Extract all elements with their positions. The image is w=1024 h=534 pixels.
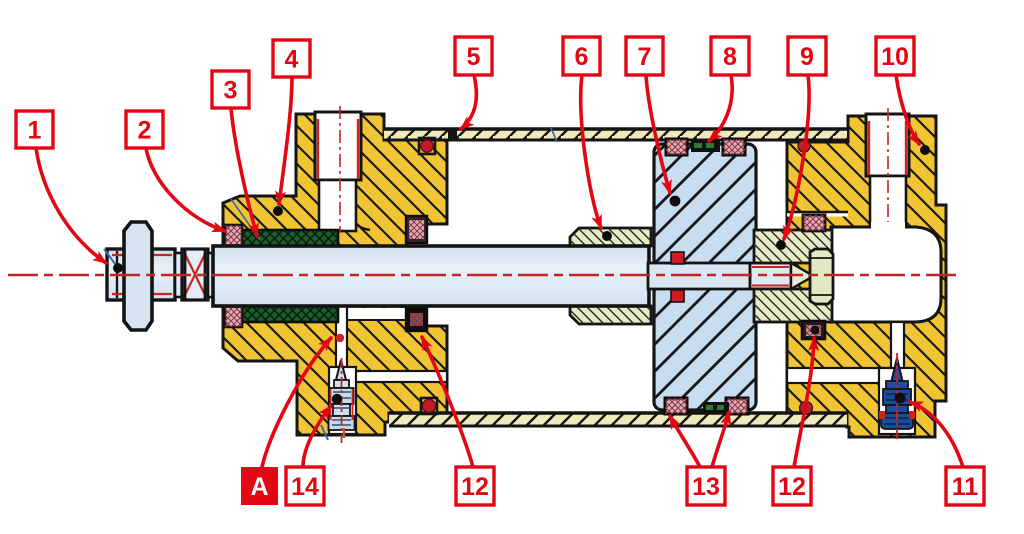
svg-text:9: 9: [800, 43, 814, 71]
svg-text:7: 7: [638, 43, 652, 71]
svg-text:5: 5: [467, 43, 481, 71]
svg-text:12: 12: [461, 473, 489, 501]
svg-text:10: 10: [881, 43, 909, 71]
svg-text:A: A: [250, 473, 268, 501]
svg-text:12: 12: [778, 473, 806, 501]
svg-text:1: 1: [28, 117, 42, 145]
svg-text:6: 6: [575, 43, 589, 71]
svg-text:11: 11: [952, 473, 979, 501]
svg-text:13: 13: [692, 473, 720, 501]
svg-text:8: 8: [723, 43, 737, 71]
svg-text:3: 3: [224, 77, 238, 105]
svg-text:4: 4: [285, 46, 299, 74]
svg-text:2: 2: [138, 117, 152, 145]
svg-text:14: 14: [291, 473, 319, 501]
